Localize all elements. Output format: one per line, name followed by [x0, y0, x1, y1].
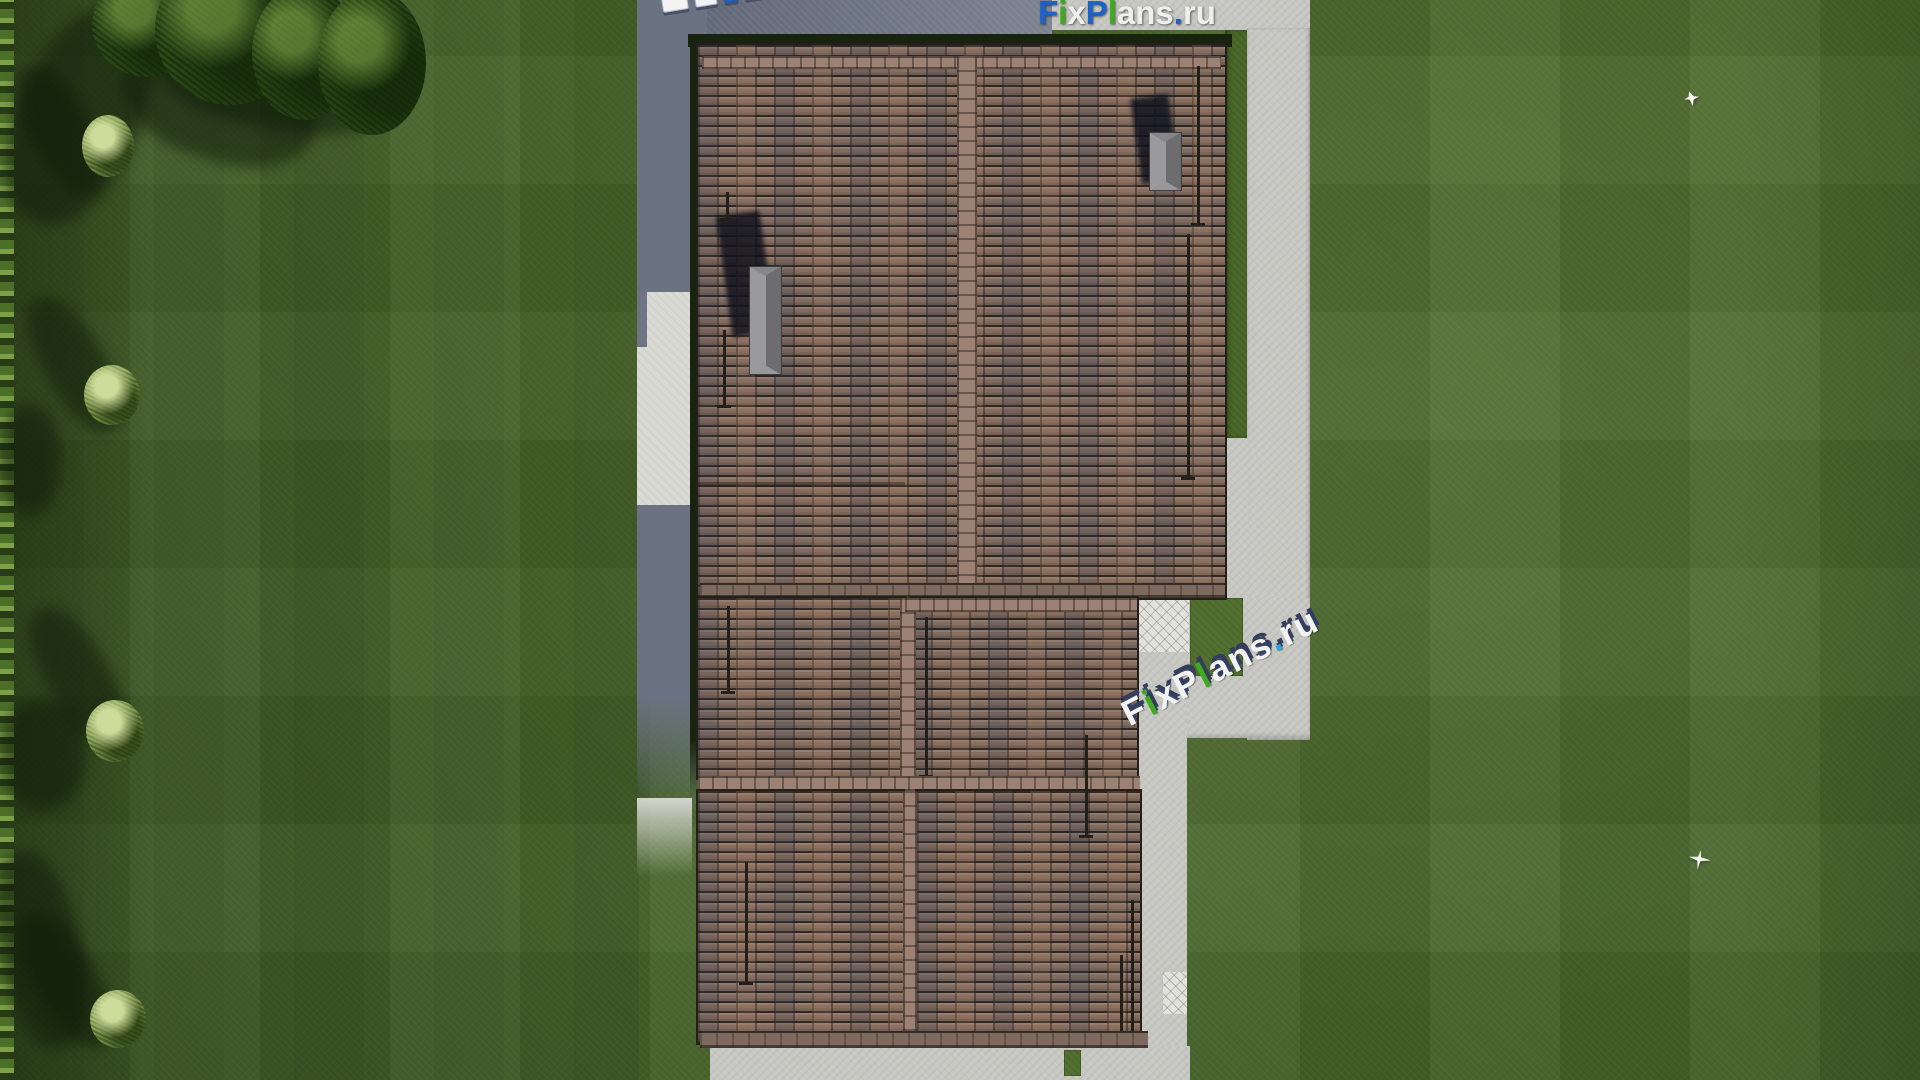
east-walkway-roof-fill: [1225, 438, 1249, 598]
roof-flashing-line: [1131, 900, 1134, 1035]
aerial-house-render: FixPlans.ru FixPlans.ru: [0, 0, 1920, 1080]
roof-mid-right-ridge: [905, 598, 1137, 612]
pebble-patch: [1139, 598, 1189, 654]
watermark-letter: ans: [1117, 0, 1174, 31]
roof-section-seam: [698, 482, 905, 487]
southwest-concrete-remnant: [637, 798, 692, 876]
watermark-letter: ru: [1183, 0, 1216, 31]
bush: [90, 990, 146, 1048]
bush: [82, 115, 134, 177]
watermark-letter: i: [1058, 0, 1067, 31]
bush: [86, 700, 144, 762]
chimney: [750, 267, 781, 374]
roof-mid-right-section: [912, 598, 1137, 778]
roof-bottom-right-section: [917, 791, 1140, 1043]
roof-flashing-line: [1197, 66, 1200, 223]
roof-bottom-valley: [903, 791, 917, 1043]
roof-flashing-line: [727, 606, 730, 691]
roof-flashing-line: [925, 617, 928, 775]
watermark-logo: FixPlans.ru: [1038, 0, 1216, 29]
roof-bottom-left-section: [698, 791, 903, 1043]
watermark-letter: .: [1174, 0, 1183, 31]
roof-flashing-line: [1085, 735, 1088, 835]
roof-flashing-line: [723, 330, 726, 405]
roof-vertical-ridge: [957, 56, 977, 584]
watermark-letter: F: [1038, 0, 1058, 31]
apron-grass-notch: [1064, 1050, 1081, 1076]
roof-mid-eave: [700, 583, 1225, 598]
roof-flashing-line: [1187, 234, 1190, 477]
watermark-letter: P: [1086, 0, 1108, 31]
south-apron: [710, 1046, 1190, 1080]
roof-south-eave: [700, 1031, 1148, 1048]
chimney: [1150, 133, 1181, 190]
roof-cross-ridge: [698, 776, 1140, 791]
roof-flashing-line: [1120, 955, 1123, 1035]
tree-shadow: [0, 405, 60, 515]
watermark-letter: l: [1108, 0, 1117, 31]
roof-mid-valley: [900, 598, 916, 778]
bush: [84, 365, 140, 425]
east-grass-strip: [1225, 30, 1247, 438]
roof-flashing-line: [745, 862, 748, 982]
roof-flashing-line: [726, 192, 729, 218]
east-path-step: [1163, 972, 1187, 1014]
watermark-letter: x: [1067, 0, 1085, 31]
west-concrete-notch: [637, 292, 647, 347]
